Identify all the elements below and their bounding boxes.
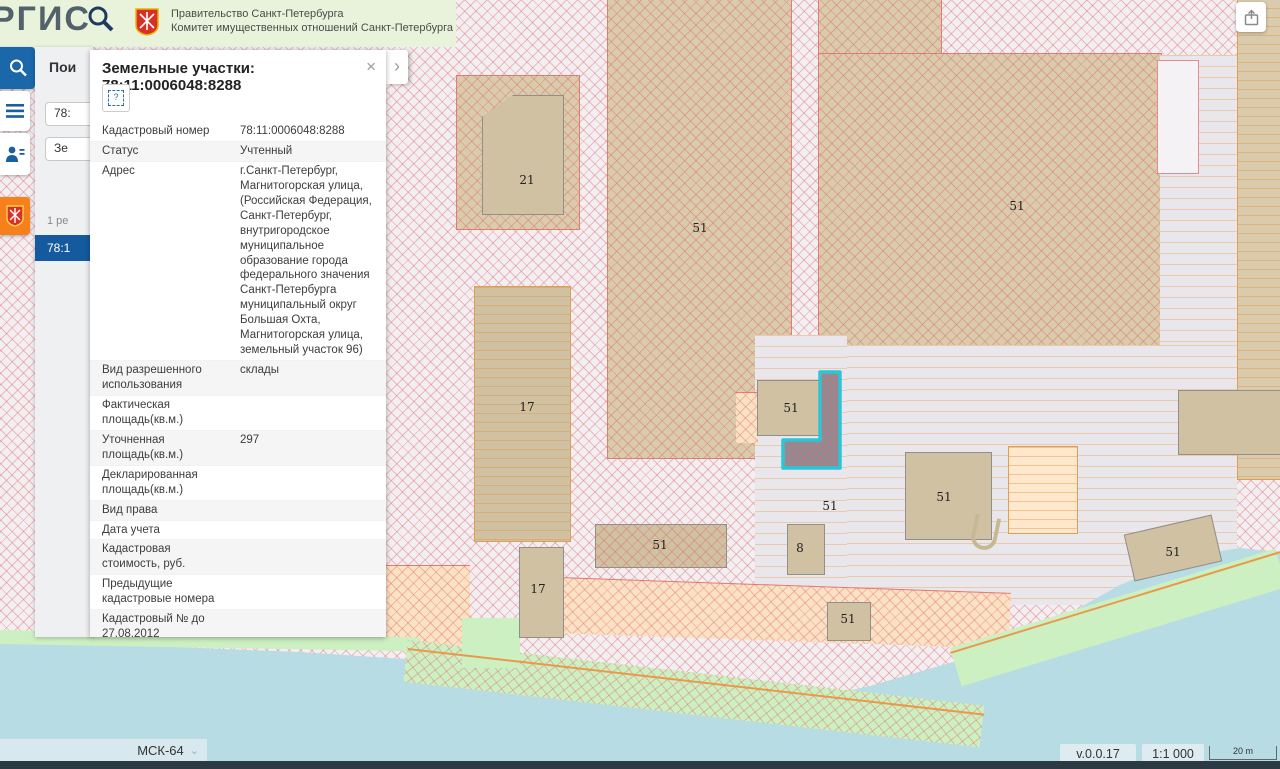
scale-bar-label: 20 m — [1233, 746, 1253, 756]
crs-value: МСК-64 — [137, 743, 184, 758]
gov-brand: Правительство Санкт-Петербурга Комитет и… — [133, 5, 453, 37]
spb-coat-of-arms-icon — [133, 5, 161, 37]
attribute-row: Уточненная площадь(кв.м.)297 — [90, 431, 386, 466]
map-building[interactable] — [787, 524, 825, 575]
search-tool-button[interactable] — [0, 47, 35, 89]
attribute-row: СтатусУчтенный — [90, 142, 386, 162]
gov-line2: Комитет имущественных отношений Санкт-Пе… — [171, 21, 453, 35]
magnifier-logo-icon — [85, 4, 115, 34]
search-panel-title: Пои — [49, 59, 76, 75]
parcel-label: 51 — [1165, 545, 1180, 559]
show-on-map-button[interactable]: ? — [102, 84, 130, 112]
attribute-row: Фактическая площадь(кв.м.) — [90, 396, 386, 431]
attribute-row: Адресг.Санкт-Петербург, Магнитогорская у… — [90, 162, 386, 361]
emblem-tool-button[interactable] — [0, 197, 30, 235]
layers-menu-button[interactable] — [0, 91, 30, 131]
attribute-row: Вид права — [90, 501, 386, 521]
gov-line1: Правительство Санкт-Петербурга — [171, 7, 453, 21]
map-parcel-zone[interactable] — [818, 0, 942, 57]
map-zone-hatched[interactable] — [1157, 60, 1199, 174]
parcel-info-popup: Земельные участки: 78:11:0006048:8288 × … — [90, 50, 386, 637]
attribute-row: Декларированная площадь(кв.м.) — [90, 466, 386, 501]
popup-expand-button[interactable]: › — [386, 50, 408, 84]
attribute-row: Кадастровый № до 27.08.2012 — [90, 610, 386, 637]
parcel-label: 17 — [519, 400, 534, 414]
attribute-row: Дата учета — [90, 521, 386, 541]
search-panel: Пои 78: Зе 1 ре 78:1 — [35, 47, 93, 637]
rgis-logo-text: РГИС — [0, 0, 91, 38]
map-building[interactable] — [482, 95, 564, 215]
map-zone-peach — [736, 392, 758, 443]
spb-emblem-icon — [5, 204, 25, 228]
selected-parcel[interactable] — [777, 366, 847, 476]
popup-attributes: Кадастровый номер78:11:0006048:8288 Стат… — [90, 122, 386, 637]
map-building[interactable] — [474, 286, 571, 542]
parcel-label: 51 — [822, 499, 837, 513]
map-zone-peach — [385, 565, 470, 646]
parcel-label: 21 — [519, 173, 534, 187]
parcel-label: 51 — [840, 612, 855, 626]
parcel-label: 8 — [796, 541, 804, 555]
map-parcel-zone[interactable] — [818, 53, 1162, 347]
hamburger-icon — [6, 104, 24, 118]
share-button[interactable] — [1236, 2, 1266, 32]
parcel-label: 51 — [783, 401, 798, 415]
parcel-label: 51 — [1009, 199, 1024, 213]
search-icon — [8, 58, 28, 78]
attribute-row: Кадастровая стоимость, руб. — [90, 540, 386, 575]
scale-bar: 20 m — [1209, 746, 1277, 760]
crs-selector[interactable]: МСК-64 ⌄ — [0, 739, 207, 762]
parcel-label: 17 — [530, 582, 545, 596]
close-icon[interactable]: × — [366, 60, 376, 74]
share-icon — [1244, 9, 1259, 26]
attribute-row: Кадастровый номер78:11:0006048:8288 — [90, 122, 386, 142]
map-building[interactable] — [1008, 446, 1078, 534]
search-results-count: 1 ре — [47, 215, 68, 227]
map-building[interactable] — [1178, 390, 1280, 455]
parcel-label: 51 — [652, 538, 667, 552]
bottom-strip — [0, 761, 1280, 769]
attribute-row: Вид разрешенного использованиясклады — [90, 361, 386, 396]
rgis-logo: РГИС — [0, 0, 115, 39]
attribute-row: Предыдущие кадастровые номера — [90, 575, 386, 610]
parcel-label: 51 — [692, 221, 707, 235]
parcel-label: 51 — [936, 490, 951, 504]
dashed-square-question-icon: ? — [108, 90, 124, 106]
rgis-app: 21 51 51 17 51 51 51 8 51 17 51 51 РГИС … — [0, 0, 1280, 769]
popup-title: Земельные участки: 78:11:0006048:8288 — [90, 50, 386, 100]
person-list-icon — [6, 146, 25, 162]
chevron-down-icon: ⌄ — [190, 744, 199, 757]
profile-tool-button[interactable] — [0, 133, 30, 175]
